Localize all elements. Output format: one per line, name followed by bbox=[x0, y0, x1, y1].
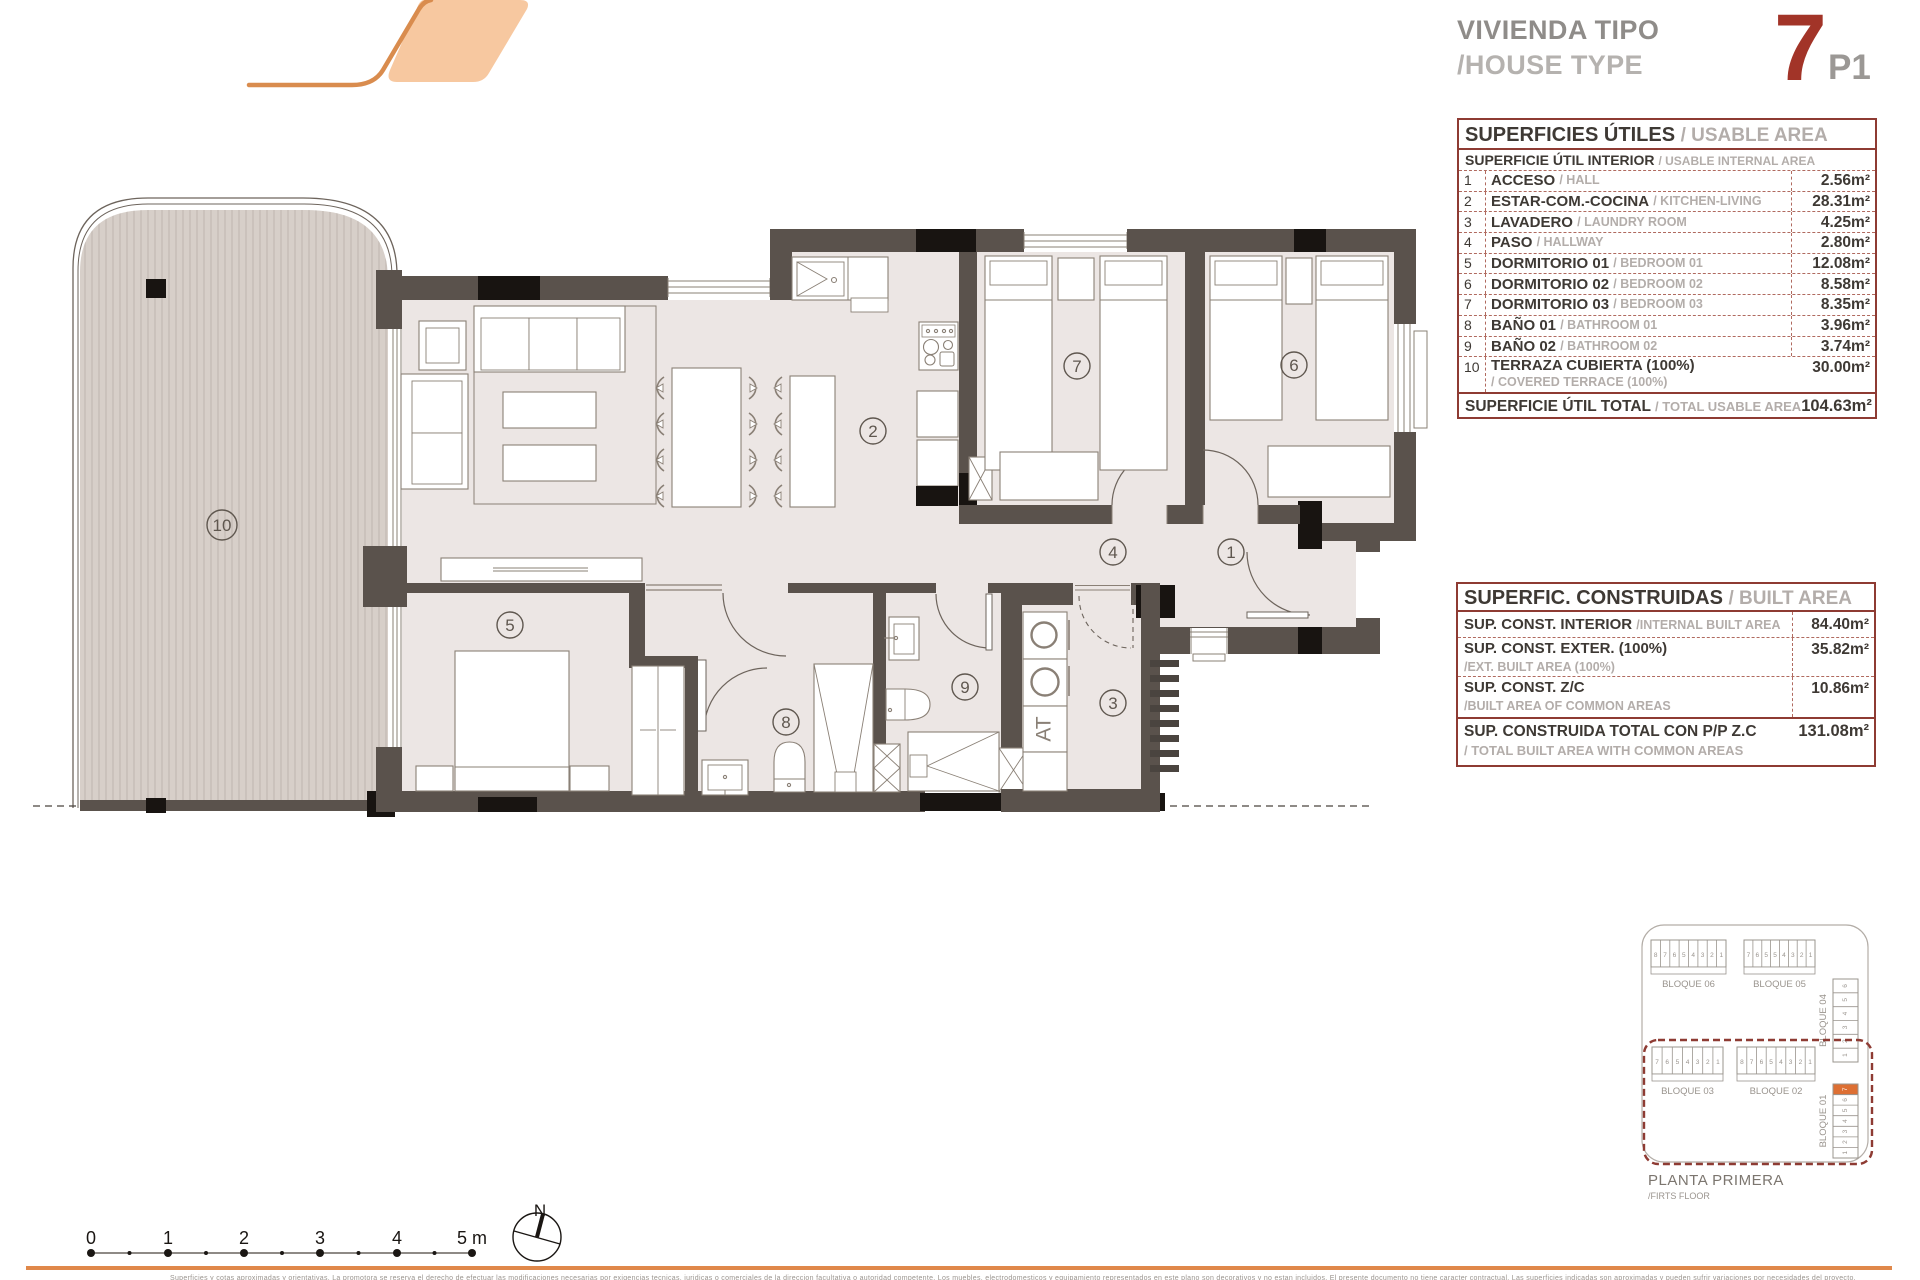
svg-text:4: 4 bbox=[1842, 1011, 1849, 1015]
svg-text:N: N bbox=[534, 1201, 546, 1220]
svg-text:8: 8 bbox=[1654, 952, 1658, 959]
svg-text:AT: AT bbox=[1033, 716, 1056, 741]
svg-text:3: 3 bbox=[1701, 952, 1705, 959]
svg-text:2: 2 bbox=[1799, 1059, 1803, 1066]
svg-text:1: 1 bbox=[1809, 952, 1813, 959]
svg-text:4: 4 bbox=[1782, 952, 1786, 959]
svg-text:7: 7 bbox=[1750, 1059, 1754, 1066]
svg-text:5: 5 bbox=[505, 616, 514, 635]
svg-text:2: 2 bbox=[1706, 1059, 1710, 1066]
svg-text:5: 5 bbox=[1764, 952, 1768, 959]
svg-text:1: 1 bbox=[1719, 952, 1723, 959]
svg-text:7: 7 bbox=[1747, 952, 1751, 959]
svg-text:4: 4 bbox=[1691, 952, 1695, 959]
svg-text:3: 3 bbox=[1696, 1059, 1700, 1066]
svg-text:5: 5 bbox=[1773, 952, 1777, 959]
svg-text:6: 6 bbox=[1842, 1098, 1849, 1102]
svg-text:6: 6 bbox=[1665, 1059, 1669, 1066]
svg-text:3: 3 bbox=[1842, 1025, 1849, 1029]
svg-text:2: 2 bbox=[1710, 952, 1714, 959]
svg-text:6: 6 bbox=[1842, 984, 1849, 988]
svg-text:4: 4 bbox=[1779, 1059, 1783, 1066]
svg-text:2: 2 bbox=[1800, 952, 1804, 959]
svg-text:BLOQUE 03: BLOQUE 03 bbox=[1661, 1086, 1714, 1097]
svg-text:1: 1 bbox=[1226, 543, 1235, 562]
svg-text:5: 5 bbox=[1769, 1059, 1773, 1066]
svg-text:5: 5 bbox=[1676, 1059, 1680, 1066]
svg-text:BLOQUE 05: BLOQUE 05 bbox=[1753, 979, 1806, 990]
svg-text:3: 3 bbox=[1108, 694, 1117, 713]
svg-text:3: 3 bbox=[1789, 1059, 1793, 1066]
svg-text:1: 1 bbox=[1716, 1059, 1720, 1066]
svg-text:5 m: 5 m bbox=[457, 1228, 487, 1248]
svg-text:9: 9 bbox=[960, 678, 969, 697]
svg-text:8: 8 bbox=[1740, 1059, 1744, 1066]
svg-text:5: 5 bbox=[1682, 952, 1686, 959]
svg-text:0: 0 bbox=[86, 1228, 96, 1248]
svg-text:1: 1 bbox=[163, 1228, 173, 1248]
svg-text:6: 6 bbox=[1760, 1059, 1764, 1066]
svg-text:4: 4 bbox=[392, 1228, 402, 1248]
svg-text:6: 6 bbox=[1755, 952, 1759, 959]
svg-text:6: 6 bbox=[1289, 356, 1298, 375]
svg-text:8: 8 bbox=[781, 713, 790, 732]
svg-text:5: 5 bbox=[1842, 1108, 1849, 1112]
svg-text:1: 1 bbox=[1808, 1059, 1812, 1066]
svg-text:3: 3 bbox=[1842, 1129, 1849, 1133]
svg-text:2: 2 bbox=[239, 1228, 249, 1248]
svg-text:BLOQUE 01: BLOQUE 01 bbox=[1818, 1095, 1829, 1148]
svg-text:PLANTA PRIMERA: PLANTA PRIMERA bbox=[1648, 1172, 1784, 1189]
svg-text:7: 7 bbox=[1072, 357, 1081, 376]
svg-text:7: 7 bbox=[1663, 952, 1667, 959]
svg-text:/FIRTS FLOOR: /FIRTS FLOOR bbox=[1648, 1191, 1710, 1201]
svg-text:1: 1 bbox=[1842, 1053, 1849, 1057]
svg-text:7: 7 bbox=[1655, 1059, 1659, 1066]
svg-text:4: 4 bbox=[1686, 1059, 1690, 1066]
svg-text:4: 4 bbox=[1108, 543, 1117, 562]
svg-text:6: 6 bbox=[1673, 952, 1677, 959]
svg-text:5: 5 bbox=[1842, 998, 1849, 1002]
svg-text:10: 10 bbox=[213, 516, 232, 535]
svg-text:BLOQUE 02: BLOQUE 02 bbox=[1750, 1086, 1803, 1097]
svg-text:3: 3 bbox=[1791, 952, 1795, 959]
svg-text:1: 1 bbox=[1842, 1151, 1849, 1155]
svg-text:7: 7 bbox=[1842, 1087, 1849, 1091]
svg-text:2: 2 bbox=[868, 422, 877, 441]
svg-text:4: 4 bbox=[1842, 1119, 1849, 1123]
svg-text:BLOQUE 06: BLOQUE 06 bbox=[1662, 979, 1715, 990]
svg-text:3: 3 bbox=[315, 1228, 325, 1248]
svg-text:2: 2 bbox=[1842, 1140, 1849, 1144]
